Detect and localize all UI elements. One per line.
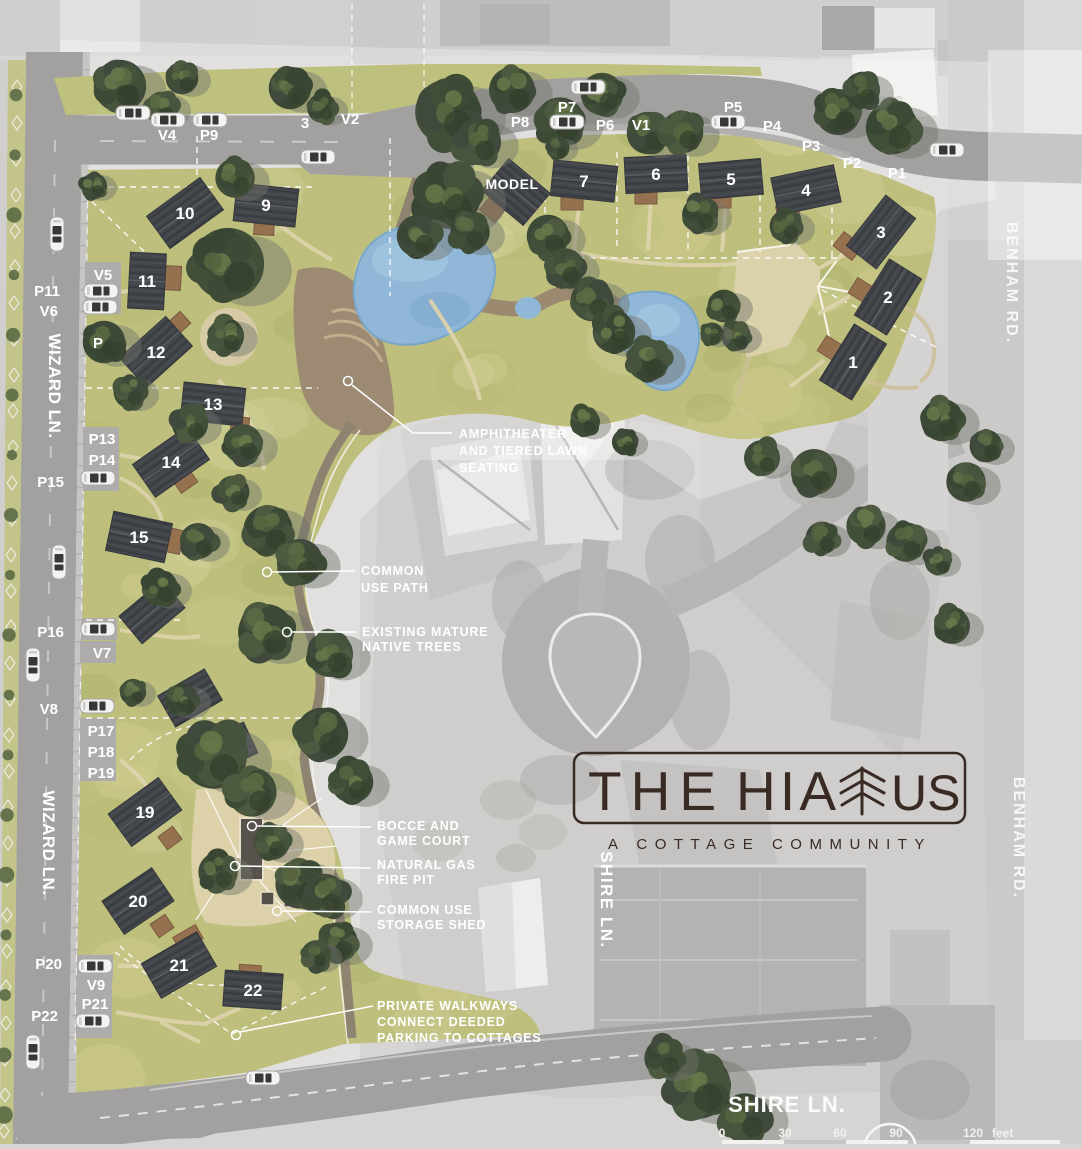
- svg-text:US: US: [891, 765, 960, 821]
- svg-text:P20: P20: [35, 956, 62, 973]
- svg-text:V4: V4: [158, 127, 177, 144]
- svg-text:P9: P9: [200, 127, 218, 144]
- svg-text:P18: P18: [88, 744, 115, 761]
- svg-text:6: 6: [651, 165, 660, 184]
- svg-text:V1: V1: [632, 117, 650, 134]
- svg-text:P17: P17: [88, 723, 115, 740]
- svg-text:P4: P4: [763, 118, 782, 135]
- svg-text:HIA: HIA: [736, 760, 836, 822]
- svg-text:A COTTAGE COMMUNITY: A COTTAGE COMMUNITY: [608, 836, 932, 853]
- svg-text:30: 30: [778, 1126, 792, 1140]
- svg-text:90: 90: [889, 1126, 903, 1140]
- svg-text:SHIRE LN.: SHIRE LN.: [597, 851, 616, 949]
- svg-text:P22: P22: [31, 1008, 58, 1025]
- svg-text:9: 9: [261, 196, 270, 215]
- svg-text:P2: P2: [843, 155, 861, 172]
- svg-text:22: 22: [244, 981, 263, 1000]
- svg-text:P15: P15: [37, 474, 64, 491]
- svg-text:P13: P13: [89, 431, 116, 448]
- svg-text:P14: P14: [89, 452, 116, 469]
- svg-text:11: 11: [138, 272, 156, 291]
- svg-text:WIZARD LN.: WIZARD LN.: [39, 790, 58, 895]
- svg-text:60: 60: [833, 1126, 847, 1140]
- svg-text:COMMON USESTORAGE SHED: COMMON USESTORAGE SHED: [377, 903, 486, 932]
- svg-text:7: 7: [579, 172, 588, 191]
- svg-text:V7: V7: [93, 645, 111, 662]
- svg-text:V6: V6: [40, 303, 58, 320]
- svg-text:P21: P21: [82, 996, 109, 1013]
- svg-text:20: 20: [129, 892, 148, 911]
- svg-text:P8: P8: [511, 114, 529, 131]
- svg-text:P19: P19: [88, 765, 115, 782]
- svg-text:19: 19: [136, 803, 155, 822]
- svg-text:V8: V8: [40, 701, 58, 718]
- svg-text:21: 21: [170, 956, 189, 975]
- svg-text:V9: V9: [87, 977, 105, 994]
- svg-text:WIZARD LN.: WIZARD LN.: [45, 333, 64, 438]
- svg-text:12: 12: [147, 343, 166, 362]
- svg-text:15: 15: [130, 528, 149, 547]
- svg-text:THE: THE: [588, 760, 716, 822]
- svg-text:3: 3: [301, 115, 309, 132]
- svg-text:0: 0: [719, 1126, 726, 1140]
- svg-text:P16: P16: [37, 624, 64, 641]
- svg-text:2: 2: [883, 288, 892, 307]
- svg-text:3: 3: [876, 223, 885, 242]
- svg-text:10: 10: [176, 204, 195, 223]
- svg-text:P7: P7: [558, 99, 576, 116]
- svg-text:P11: P11: [34, 283, 60, 300]
- svg-text:MODEL: MODEL: [485, 176, 538, 192]
- svg-text:V2: V2: [341, 111, 359, 128]
- svg-text:P5: P5: [724, 99, 742, 116]
- svg-text:P: P: [93, 335, 103, 352]
- svg-text:V5: V5: [94, 267, 112, 284]
- svg-text:P1: P1: [888, 165, 906, 182]
- svg-text:P3: P3: [802, 138, 820, 155]
- svg-text:5: 5: [726, 170, 735, 189]
- svg-text:feet: feet: [992, 1126, 1013, 1140]
- svg-text:BENHAM RD.: BENHAM RD.: [1010, 777, 1027, 899]
- svg-text:4: 4: [801, 181, 811, 200]
- svg-text:P6: P6: [596, 117, 614, 134]
- svg-text:1: 1: [848, 353, 857, 372]
- svg-text:SHIRE LN.: SHIRE LN.: [728, 1092, 846, 1117]
- svg-text:120: 120: [963, 1126, 983, 1140]
- svg-text:BOCCE ANDGAME COURT: BOCCE ANDGAME COURT: [377, 819, 470, 848]
- svg-text:14: 14: [162, 453, 181, 472]
- svg-text:BENHAM RD.: BENHAM RD.: [1003, 222, 1020, 344]
